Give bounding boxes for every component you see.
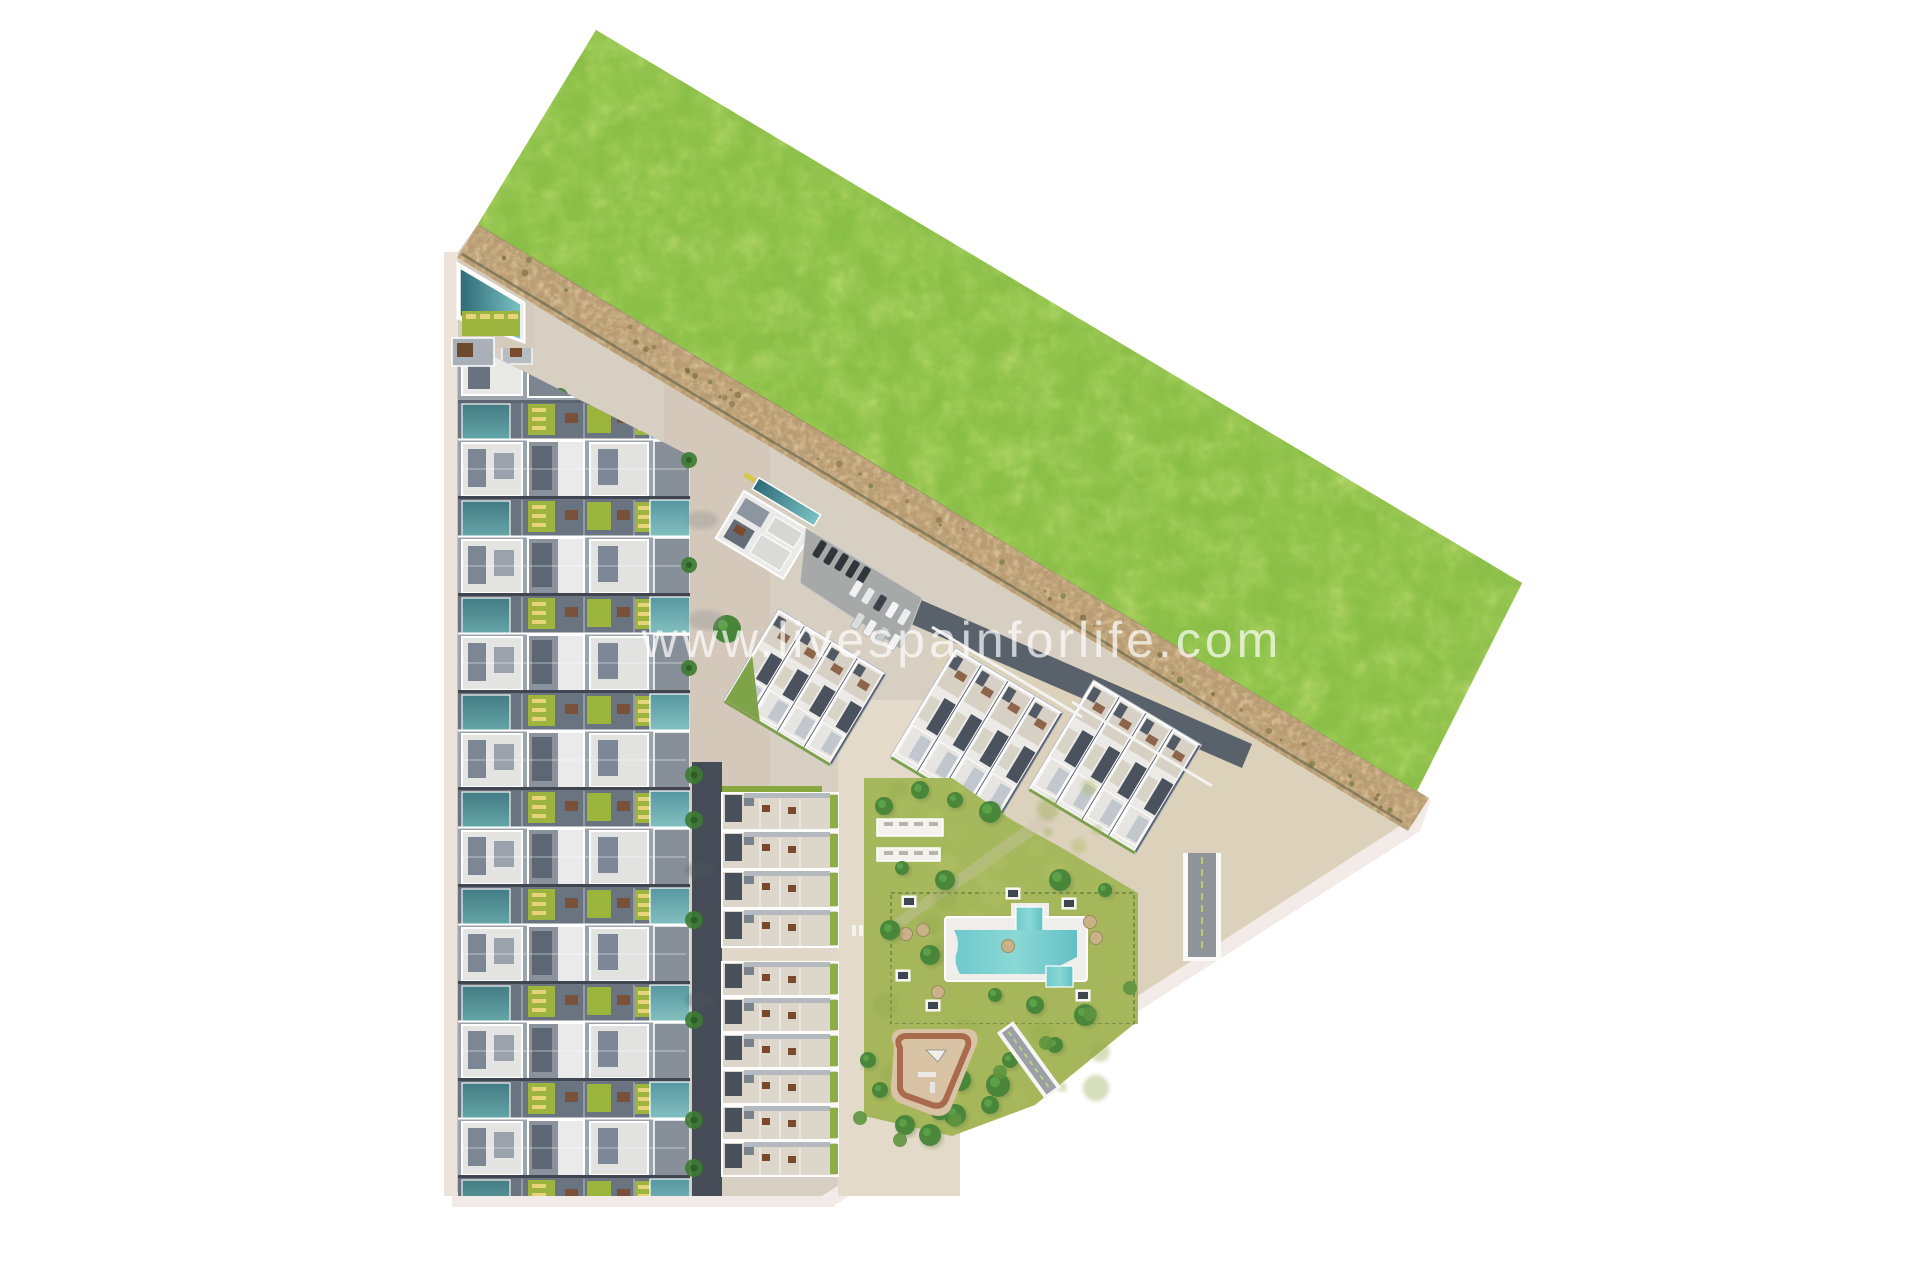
svg-text:www.livespainforlife.com: www.livespainforlife.com	[641, 612, 1283, 668]
